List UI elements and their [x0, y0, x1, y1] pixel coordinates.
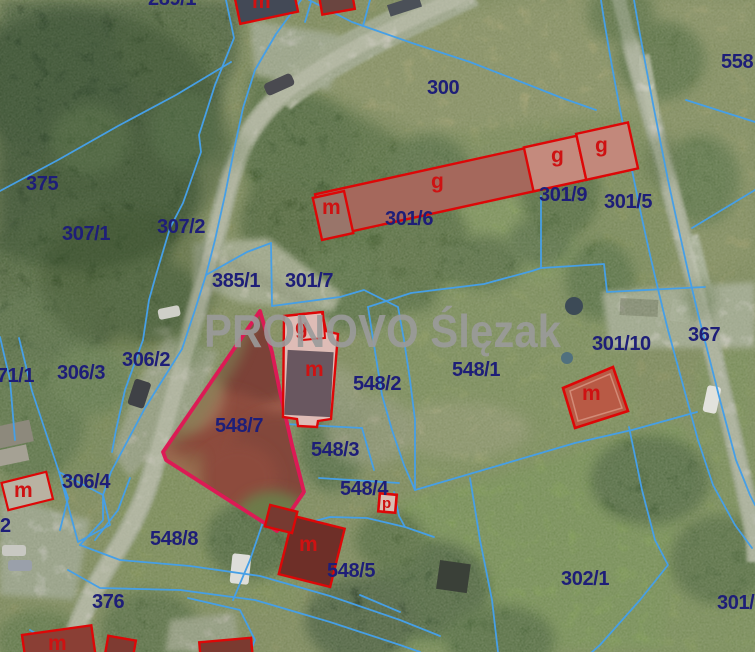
- svg-text:m: m: [582, 382, 601, 405]
- svg-text:m: m: [48, 632, 67, 652]
- svg-text:2: 2: [0, 515, 11, 537]
- svg-text:548/3: 548/3: [311, 439, 359, 461]
- svg-text:571/1: 571/1: [0, 365, 34, 387]
- svg-text:558: 558: [721, 51, 753, 73]
- svg-text:301/5: 301/5: [604, 191, 652, 213]
- svg-text:301/6: 301/6: [385, 208, 433, 230]
- svg-text:PRONOVO Ślęzak: PRONOVO Ślęzak: [204, 305, 561, 357]
- svg-text:376: 376: [92, 591, 124, 613]
- svg-text:m: m: [322, 196, 341, 219]
- svg-text:g: g: [551, 144, 564, 167]
- svg-text:m: m: [305, 358, 324, 381]
- svg-text:m: m: [252, 0, 271, 13]
- svg-text:g: g: [595, 134, 608, 157]
- svg-text:289/1: 289/1: [148, 0, 196, 10]
- svg-text:548/7: 548/7: [215, 415, 263, 437]
- svg-text:m: m: [14, 479, 33, 502]
- svg-text:548/5: 548/5: [327, 560, 375, 582]
- svg-text:307/1: 307/1: [62, 223, 110, 245]
- svg-text:548/2: 548/2: [353, 373, 401, 395]
- svg-text:301/9: 301/9: [539, 184, 587, 206]
- svg-text:301/10: 301/10: [592, 333, 651, 355]
- svg-text:306/2: 306/2: [122, 349, 170, 371]
- svg-text:302/1: 302/1: [561, 568, 609, 590]
- svg-text:385/1: 385/1: [212, 270, 260, 292]
- svg-text:300: 300: [427, 77, 459, 99]
- svg-text:g: g: [431, 170, 444, 193]
- svg-text:m: m: [299, 533, 318, 556]
- svg-text:301/7: 301/7: [285, 270, 333, 292]
- svg-text:307/2: 307/2: [157, 216, 205, 238]
- svg-text:306/4: 306/4: [62, 471, 111, 493]
- svg-text:375: 375: [26, 173, 58, 195]
- svg-text:p: p: [382, 495, 391, 512]
- svg-text:548/1: 548/1: [452, 359, 500, 381]
- svg-text:548/8: 548/8: [150, 528, 198, 550]
- svg-text:301/2: 301/2: [717, 592, 755, 614]
- svg-text:306/3: 306/3: [57, 362, 105, 384]
- svg-text:367: 367: [688, 324, 720, 346]
